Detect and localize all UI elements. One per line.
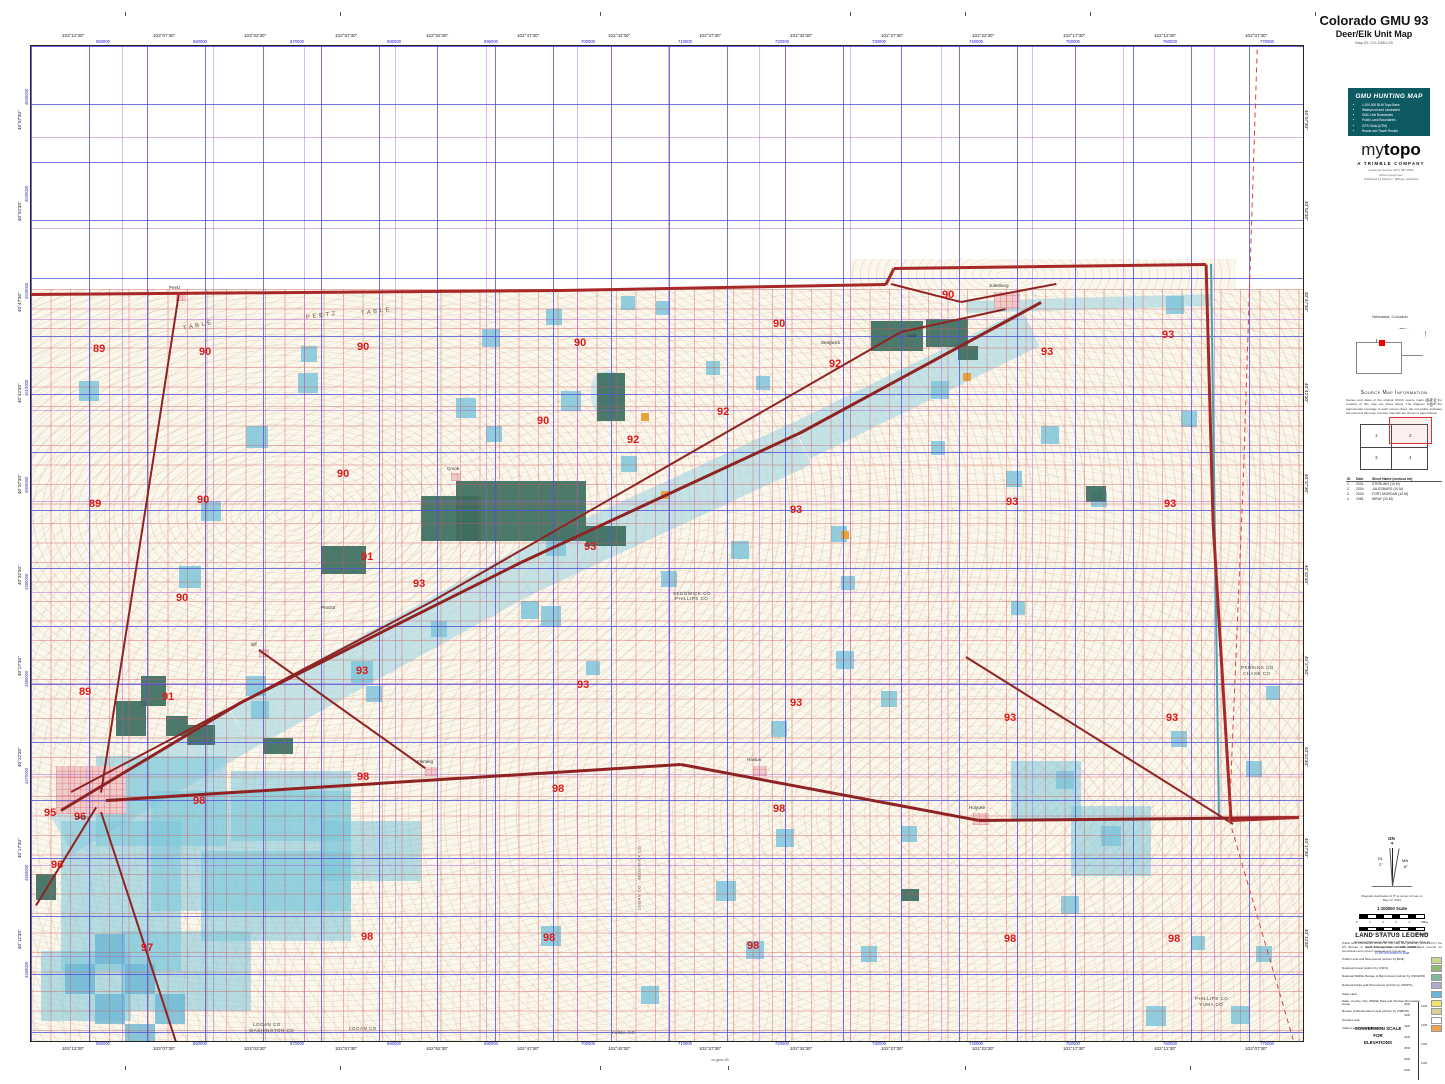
true-north-degrees: 2° (1379, 862, 1383, 867)
edge-coordinate-label: 40°57'30" (1303, 110, 1308, 130)
edge-coordinate-label: 103°12'30" (62, 1047, 84, 1052)
gmu-number-label: 93 (584, 541, 596, 553)
edge-coordinate-label: 40°37'30" (1303, 474, 1308, 494)
edge-coordinate-label: 102°42'30" (608, 34, 630, 39)
edge-coordinate-label: 670000 (290, 1042, 304, 1046)
margin-tick (965, 1066, 966, 1070)
source-sheet-table: IDDateSheet Name (contour int) 12001STER… (1346, 477, 1442, 502)
legend-item: Public Land and Monuments (Admin by BLM) (1342, 957, 1442, 964)
legend-item: National Parks and Monuments (Admin by U… (1342, 982, 1442, 989)
elevation-feet-tick: 4400 (1404, 1013, 1410, 1017)
conversion-line1: CONVERSION SCALE (1355, 1026, 1402, 1031)
edge-coordinate-label: 40°42'30" (18, 383, 23, 403)
place-label: Proctor (321, 606, 336, 611)
edge-coordinate-label: 4480000 (25, 671, 29, 687)
edge-coordinate-label: 103°02'30" (244, 1047, 266, 1052)
edge-coordinate-label: 4470000 (25, 768, 29, 784)
edge-coordinate-label: 102°57'30" (335, 34, 357, 39)
edge-coordinate-label: 730000 (872, 1042, 886, 1046)
legend-item-label: State, County, City, Wildlife Park and O… (1342, 1000, 1428, 1007)
edge-coordinate-label: 650000 (96, 1042, 110, 1046)
gmu-number-label: 97 (141, 942, 153, 954)
edge-coordinate-label: 102°12'30" (1154, 34, 1176, 39)
margin-tick (340, 12, 341, 16)
elevation-feet-tick: 4600 (1404, 1002, 1410, 1006)
legend-color-swatch (1431, 1008, 1442, 1015)
gmu-number-label: 93 (1041, 346, 1053, 358)
edge-coordinate-label: 770000 (1260, 40, 1274, 44)
edge-coordinate-label: 40°42'30" (1303, 383, 1308, 403)
edge-coordinate-label: 4520000 (25, 283, 29, 299)
state-locator-inset: Nebraska, Colorado (1350, 314, 1430, 374)
edge-coordinate-label: 40°37'30" (18, 474, 23, 494)
scale-title: 1:100000 Scale (1350, 906, 1434, 911)
gmu-number-label: 90 (197, 494, 209, 506)
edge-coordinate-label: 750000 (1066, 1042, 1080, 1046)
edge-coordinate-label: 40°32'30" (18, 565, 23, 585)
sheet-index-cell-number: 3 (1375, 455, 1378, 460)
sheet-index-cell-number: 1 (1375, 433, 1378, 438)
scale-unit-label: Miles (1421, 920, 1428, 924)
elevation-feet-tick: 4200 (1404, 1024, 1410, 1028)
gmu-number-label: 93 (1162, 329, 1174, 341)
legend-color-swatch (1431, 957, 1442, 964)
gmu-number-label: 90 (199, 346, 211, 358)
edge-coordinate-label: 40°52'30" (18, 201, 23, 221)
gmu-number-label: 93 (790, 697, 802, 709)
elevation-meters-tick: 1200 (1421, 1042, 1427, 1046)
place-label: Ovid (907, 334, 916, 339)
edge-coordinate-label: 4450000 (25, 962, 29, 978)
gmu-number-label: 89 (93, 343, 105, 355)
elevation-feet-tick: 3600 (1404, 1057, 1410, 1061)
place-label: CHASE CO (1243, 672, 1271, 677)
title-block: Colorado GMU 93 Deer/Elk Unit Map Map ID… (1306, 13, 1442, 45)
edge-coordinate-label: 102°22'30" (972, 34, 994, 39)
margin-tick (125, 1066, 126, 1070)
gmu-number-label: 93 (356, 665, 368, 677)
legend-rows: Public Land and Monuments (Admin by BLM)… (1342, 957, 1442, 1033)
edge-coordinate-label: 40°27'30" (1303, 656, 1308, 676)
place-label: Fleming (417, 760, 433, 765)
logo-my: my (1361, 140, 1384, 159)
edge-coordinate-label: 40°17'30" (18, 838, 23, 858)
legend-paragraph: Public land boundaries shown on this map… (1342, 941, 1442, 954)
map-labels-layer: 8989899090909090909090909191929292939393… (31, 46, 1303, 1041)
edge-coordinate-label: 770000 (1260, 1042, 1274, 1046)
legend-color-swatch (1431, 1000, 1442, 1007)
edge-coordinate-label: 4530000 (25, 186, 29, 202)
gmu-number-label: 90 (337, 468, 349, 480)
edge-coordinate-label: 102°42'30" (608, 1047, 630, 1052)
legend-item: State Land (1342, 991, 1442, 998)
sheet-table-row: 41981WRAY (10 M) (1346, 497, 1442, 502)
edge-coordinate-label: 102°37'30" (699, 34, 721, 39)
source-heading: Source Map Information (1346, 390, 1442, 396)
map-id: Map ID: CO-GMU-93 (1306, 40, 1442, 45)
gmu-number-label: 92 (829, 358, 841, 370)
conversion-line3: ELEVATIONS (1364, 1040, 1392, 1045)
edge-coordinate-label: 760000 (1163, 1042, 1177, 1046)
edge-coordinate-label: 103°07'30" (153, 34, 175, 39)
place-label: LOGAN CO · SEDGWICK CO (637, 846, 641, 911)
magnetic-north-degrees: 8° (1404, 864, 1408, 869)
gmu-number-label: 98 (357, 771, 369, 783)
edge-coordinate-label: 103°02'30" (244, 34, 266, 39)
edge-coordinate-label: 670000 (290, 40, 304, 44)
sheet-table-cell: WRAY (10 M) (1371, 497, 1442, 502)
gmu-number-label: 93 (790, 504, 802, 516)
edge-coordinate-label: 720000 (775, 40, 789, 44)
edge-coordinate-label: 102°07'30" (1245, 34, 1267, 39)
margin-tick (965, 12, 966, 16)
edge-coordinate-label: 660000 (193, 1042, 207, 1046)
margin-tick (125, 12, 126, 16)
magnetic-north-line (1392, 848, 1400, 886)
gmu-number-label: 93 (577, 679, 589, 691)
legend-item-label: National Wildlife Refuge & Mgmt Areas (A… (1342, 975, 1428, 979)
margin-tick (340, 1066, 341, 1070)
edge-coordinate-label: 40°47'30" (18, 292, 23, 312)
gmu-number-label: 91 (162, 691, 174, 703)
miles-scale-bar (1359, 914, 1425, 919)
edge-coordinate-label: 690000 (484, 1042, 498, 1046)
true-north-label: TN (1377, 856, 1382, 861)
gmu-number-label: 92 (717, 406, 729, 418)
elevation-meters-tick: 1100 (1421, 1061, 1427, 1065)
logo-company-line: A TRIMBLE COMPANY (1345, 161, 1437, 166)
elevation-conversion-ruler (1418, 1002, 1419, 1080)
scale-tick-label: 1 (1369, 920, 1371, 924)
edge-coordinate-label: 4490000 (25, 574, 29, 590)
scale-tick-label: 2 (1382, 920, 1384, 924)
logo-contact-line: Published by MyTopo · Billings, Montana (1345, 177, 1437, 182)
edge-coordinate-label: 40°22'30" (18, 747, 23, 767)
gmu-number-label: 90 (357, 341, 369, 353)
bottom-map-code: co-gmu-93 (688, 1058, 752, 1062)
edge-coordinate-label: 103°07'30" (153, 1047, 175, 1052)
logo-contact-lines: Customer Service (877) 587-9004www.mytop… (1345, 168, 1437, 182)
edge-coordinate-label: 680000 (387, 1042, 401, 1046)
scale-tick-label: 4 (1408, 920, 1410, 924)
place-label: LOGAN CO (253, 1023, 281, 1028)
place-label: Sedgwick (821, 341, 840, 346)
place-label: PHILLIPS CO (675, 597, 708, 602)
declination-note-line2: May 12, 2021 (1383, 898, 1401, 902)
legend-color-swatch (1431, 965, 1442, 972)
edge-coordinate-label: 102°12'30" (1154, 1047, 1176, 1052)
gmu-number-label: 96 (51, 859, 63, 871)
gmu-number-label: 93 (1004, 712, 1016, 724)
sheet-index-cell-number: 2 (1409, 433, 1412, 438)
edge-coordinate-label: 760000 (1163, 40, 1177, 44)
place-label: T A B L E (183, 320, 213, 332)
edge-coordinate-label: 710000 (678, 1042, 692, 1046)
edge-coordinate-label: 40°12'30" (1303, 929, 1308, 949)
miles-scale-labels: 01234Miles (1356, 920, 1428, 924)
colorado-outline (1356, 342, 1402, 374)
edge-coordinate-label: 700000 (581, 40, 595, 44)
place-label: P E E T Z (306, 311, 337, 321)
scale-tick-label: 3 (1395, 920, 1397, 924)
gmu-number-label: 98 (543, 932, 555, 944)
place-label: YUMA CO (1199, 1003, 1223, 1008)
legend-item-label: National Parks and Monuments (Admin by U… (1342, 984, 1428, 988)
edge-coordinate-label: 740000 (969, 1042, 983, 1046)
banner-bullet-list: 1:100,000 BLM Topo BaseWaterproof and La… (1362, 103, 1430, 134)
gmu-number-label: 89 (79, 686, 91, 698)
edge-coordinate-label: 102°52'30" (426, 34, 448, 39)
edge-coordinate-label: 102°57'30" (335, 1047, 357, 1052)
elevation-feet-tick: 3800 (1404, 1046, 1410, 1050)
legend-item: National Wildlife Refuge & Mgmt Areas (A… (1342, 974, 1442, 981)
edge-coordinate-label: 40°32'30" (1303, 565, 1308, 585)
place-label: Crook (447, 467, 459, 472)
place-label: Julesburg (989, 284, 1009, 289)
legend-color-swatch (1431, 1017, 1442, 1024)
gmu-number-label: 89 (89, 498, 101, 510)
margin-tick (850, 12, 851, 16)
map-extent-highlight (1389, 417, 1432, 445)
magnetic-north-label: MN (1402, 858, 1408, 863)
sheet-index-diagram: 1234 (1360, 424, 1428, 470)
km-scale-bar (1359, 927, 1425, 932)
legend-color-swatch (1431, 1025, 1442, 1032)
legend-item: National Forest (Admin by USFS) (1342, 965, 1442, 972)
legend-color-swatch (1431, 991, 1442, 998)
legend-heading: LAND STATUS LEGEND (1342, 933, 1442, 939)
edge-coordinate-label: 102°32'30" (790, 1047, 812, 1052)
gmu-number-label: 98 (1168, 933, 1180, 945)
gmu-number-label: 93 (1166, 712, 1178, 724)
edge-coordinate-label: 40°57'30" (18, 110, 23, 130)
margin-tick (1190, 1066, 1191, 1070)
edge-coordinate-label: 102°47'30" (517, 1047, 539, 1052)
edge-coordinate-label: 102°32'30" (790, 34, 812, 39)
legend-item-label: Public Land and Monuments (Admin by BLM) (1342, 958, 1428, 962)
declination-note: Magnetic declination of 8° at center of … (1350, 894, 1434, 902)
place-label: LOGAN CO (349, 1027, 377, 1032)
place-label: WASHINGTON CO (249, 1029, 294, 1034)
gmu-number-label: 90 (537, 415, 549, 427)
edge-coordinate-label: 102°37'30" (699, 1047, 721, 1052)
margin-tick (1090, 12, 1091, 16)
edge-coordinate-label: 40°17'30" (1303, 838, 1308, 858)
place-label: Holyoke (969, 806, 985, 811)
edge-coordinate-label: 4500000 (25, 477, 29, 493)
edge-coordinate-label: 4540000 (25, 89, 29, 105)
conversion-line2: FOR (1373, 1033, 1383, 1038)
gmu-number-label: 98 (1004, 933, 1016, 945)
edge-coordinate-label: 4510000 (25, 380, 29, 396)
gmu-number-label: 98 (361, 931, 373, 943)
gmu-hunting-map-banner: GMU HUNTING MAP 1:100,000 BLM Topo BaseW… (1348, 88, 1430, 136)
page-title: Colorado GMU 93 (1306, 13, 1442, 28)
place-label: Peetz (169, 286, 181, 291)
gmu-number-label: 93 (413, 578, 425, 590)
edge-coordinate-label: 102°07'30" (1245, 1047, 1267, 1052)
edge-coordinate-label: 730000 (872, 40, 886, 44)
gmu-number-label: 90 (574, 337, 586, 349)
map-location-marker (1379, 340, 1385, 346)
gmu-map-page: 8989899090909090909090909191929292939393… (0, 0, 1445, 1084)
inset-label: Nebraska, Colorado (1350, 314, 1430, 319)
edge-coordinate-label: 650000 (96, 40, 110, 44)
logo-topo: topo (1384, 140, 1421, 159)
place-label: Sterling (75, 816, 90, 821)
banner-bullet: Roads and Travel Routes (1362, 129, 1430, 134)
declination-baseline (1372, 886, 1412, 887)
edge-coordinate-label: 710000 (678, 40, 692, 44)
margin-tick (600, 12, 601, 16)
gmu-number-label: 91 (361, 551, 373, 563)
legend-item: Bureau of Reclamation Land (Admin by USB… (1342, 1008, 1442, 1015)
sheet-index-cell-number: 4 (1409, 455, 1412, 460)
gmu-number-label: 98 (552, 783, 564, 795)
gmu-number-label: 98 (193, 795, 205, 807)
legend-color-swatch (1431, 982, 1442, 989)
edge-coordinate-label: 40°52'30" (1303, 201, 1308, 221)
edge-coordinate-label: 690000 (484, 40, 498, 44)
edge-coordinate-label: 680000 (387, 40, 401, 44)
legend-item-label: State Land (1342, 993, 1428, 997)
place-label: T A B L E (361, 307, 391, 317)
gmu-number-label: 90 (942, 289, 954, 301)
sheet-table-cell: 1981 (1355, 497, 1371, 502)
north-star-icon: ✶ (1390, 841, 1394, 847)
edge-coordinate-label: 40°27'30" (18, 656, 23, 676)
edge-coordinate-label: 102°22'30" (972, 1047, 994, 1052)
edge-coordinate-label: 40°12'30" (18, 929, 23, 949)
banner-heading: GMU HUNTING MAP (1348, 93, 1430, 100)
edge-coordinate-label: 102°27'30" (881, 34, 903, 39)
place-label: YUMA CO (611, 1031, 635, 1036)
edge-coordinate-label: 102°52'30" (426, 1047, 448, 1052)
edge-coordinate-label: 40°47'30" (1303, 292, 1308, 312)
edge-coordinate-label: 740000 (969, 40, 983, 44)
scale-tick-label: 0 (1356, 920, 1358, 924)
edge-coordinate-label: 102°47'30" (517, 34, 539, 39)
legend-item-label: National Forest (Admin by USFS) (1342, 967, 1428, 971)
place-label: Iliff (251, 643, 257, 648)
gmu-number-label: 93 (1164, 498, 1176, 510)
edge-coordinate-label: 40°22'30" (1303, 747, 1308, 767)
index-divider-h (1361, 447, 1427, 448)
margin-tick (600, 1066, 601, 1070)
gmu-number-label: 98 (747, 940, 759, 952)
map-canvas: 8989899090909090909090909191929292939393… (30, 45, 1304, 1042)
place-label: Haxtun (747, 758, 761, 763)
elevation-meters-tick: 1300 (1421, 1023, 1427, 1027)
land-status-legend: LAND STATUS LEGEND Public land boundarie… (1342, 933, 1442, 1034)
edge-coordinate-label: 720000 (775, 1042, 789, 1046)
gmu-number-label: 93 (1006, 496, 1018, 508)
declination-diagram: GN ✶ TN 2° MN 8° (1350, 836, 1434, 892)
edge-coordinate-label: 750000 (1066, 40, 1080, 44)
edge-coordinate-label: 700000 (581, 1042, 595, 1046)
elevation-feet-tick: 3400 (1404, 1068, 1410, 1072)
legend-item-label: Bureau of Reclamation Land (Admin by USB… (1342, 1010, 1428, 1014)
edge-coordinate-label: 4460000 (25, 865, 29, 881)
gmu-number-label: 90 (773, 318, 785, 330)
place-label: PERKINS CO (1241, 666, 1274, 671)
vertical-map-id: CO GMU 93 (1425, 398, 1437, 408)
edge-coordinate-label: 102°17'30" (1063, 34, 1085, 39)
mytopo-logo: mytopo A TRIMBLE COMPANY Customer Servic… (1345, 140, 1437, 182)
elevation-feet-tick: 4000 (1404, 1035, 1410, 1039)
place-label: PHILLIPS CO (1195, 997, 1228, 1002)
legend-item-label: Private Land (1342, 1019, 1428, 1023)
gmu-number-label: 95 (44, 807, 56, 819)
margin-tick (728, 1066, 729, 1070)
edge-coordinate-label: 102°17'30" (1063, 1047, 1085, 1052)
edge-coordinate-label: 103°12'30" (62, 34, 84, 39)
elevation-meters-tick: 1400 (1421, 1004, 1427, 1008)
gmu-number-label: 90 (176, 592, 188, 604)
edge-coordinate-label: 102°27'30" (881, 1047, 903, 1052)
page-subtitle: Deer/Elk Unit Map (1306, 29, 1442, 39)
logo-wordmark: mytopo (1345, 140, 1437, 160)
edge-coordinate-label: 660000 (193, 40, 207, 44)
legend-color-swatch (1431, 974, 1442, 981)
gmu-number-label: 92 (627, 434, 639, 446)
gmu-number-label: 98 (773, 803, 785, 815)
sheet-table-cell: 4 (1346, 497, 1355, 502)
